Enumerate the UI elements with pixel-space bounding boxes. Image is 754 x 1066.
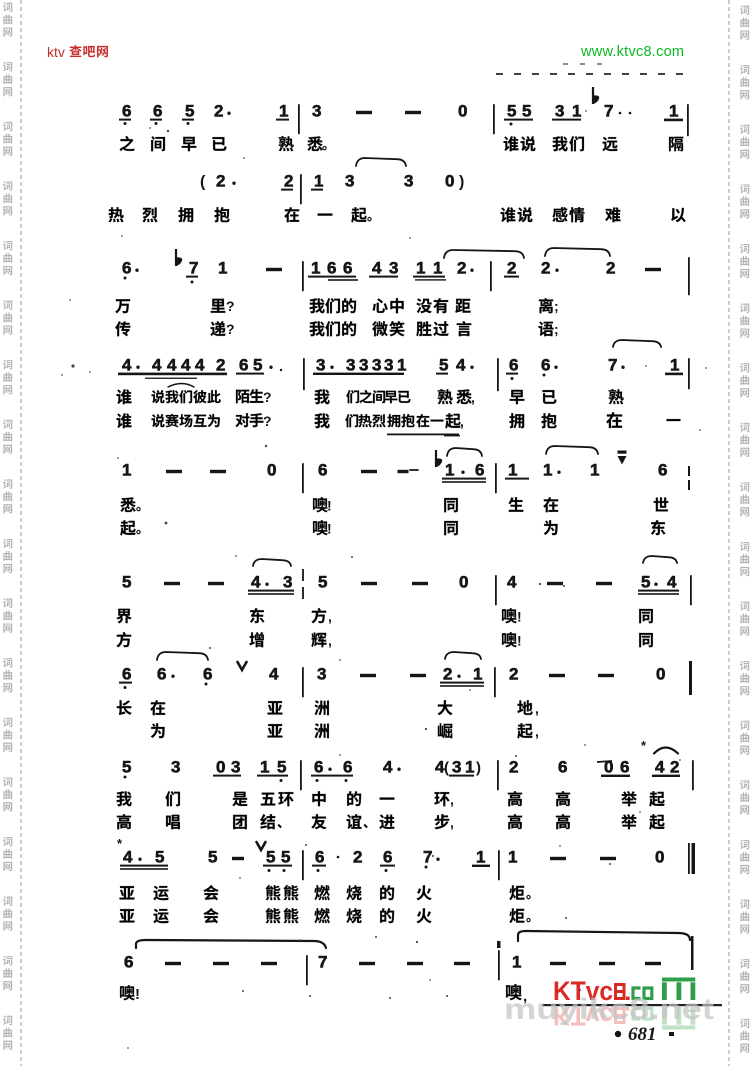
- svg-text:3: 3: [317, 664, 326, 683]
- svg-text:3: 3: [452, 757, 461, 776]
- svg-text:6: 6: [327, 258, 336, 277]
- svg-text:6: 6: [343, 757, 352, 776]
- svg-text:2: 2: [606, 258, 615, 277]
- svg-text:2: 2: [353, 847, 362, 866]
- svg-text:6: 6: [620, 757, 629, 776]
- svg-text:3: 3: [312, 101, 321, 120]
- svg-text:3: 3: [316, 355, 325, 374]
- svg-text:,: ,: [471, 390, 475, 406]
- svg-text:4: 4: [655, 757, 665, 776]
- svg-text:6: 6: [343, 258, 352, 277]
- svg-text:1: 1: [590, 460, 599, 479]
- svg-text:2: 2: [509, 757, 518, 776]
- svg-text:4: 4: [167, 355, 177, 374]
- svg-text:): ): [476, 759, 481, 776]
- svg-text:6: 6: [383, 847, 392, 866]
- svg-text:6: 6: [509, 355, 518, 374]
- svg-text:,: ,: [535, 701, 539, 717]
- svg-text:6: 6: [315, 847, 324, 866]
- svg-text:4: 4: [195, 355, 205, 374]
- svg-text:7: 7: [608, 355, 617, 374]
- svg-text:6: 6: [157, 664, 166, 683]
- svg-text:3: 3: [404, 171, 413, 190]
- svg-text:0: 0: [267, 460, 276, 479]
- svg-text:6: 6: [124, 952, 133, 971]
- svg-text:1: 1: [669, 101, 678, 120]
- svg-text:!: !: [135, 986, 140, 1003]
- svg-text:4: 4: [667, 572, 677, 591]
- svg-text:1: 1: [473, 664, 482, 683]
- svg-text:4: 4: [123, 847, 133, 866]
- svg-text:4: 4: [269, 664, 279, 683]
- svg-text:!: !: [327, 521, 332, 537]
- svg-text:1: 1: [218, 258, 227, 277]
- svg-text:;: ;: [554, 298, 559, 314]
- svg-text:4: 4: [372, 258, 382, 277]
- svg-text:6: 6: [122, 258, 131, 277]
- svg-text:681: 681: [628, 1024, 657, 1045]
- svg-text:1: 1: [314, 171, 323, 190]
- svg-text:6: 6: [658, 460, 667, 479]
- svg-text:2: 2: [457, 258, 466, 277]
- svg-text:0: 0: [216, 757, 225, 776]
- svg-text:6: 6: [122, 664, 131, 683]
- svg-text:3: 3: [555, 101, 564, 120]
- svg-text:3: 3: [346, 355, 355, 374]
- svg-text:1: 1: [260, 757, 269, 776]
- svg-text:*: *: [641, 738, 647, 753]
- svg-text:muyikc8.net: muyikc8.net: [504, 993, 714, 1026]
- svg-text:7: 7: [604, 101, 613, 120]
- svg-text:ktv: ktv: [47, 44, 65, 60]
- svg-text:5: 5: [208, 847, 217, 866]
- svg-text:2: 2: [284, 171, 293, 190]
- svg-text:5: 5: [522, 101, 531, 120]
- svg-text:7: 7: [318, 952, 327, 971]
- svg-text:1: 1: [476, 847, 485, 866]
- svg-text:6: 6: [239, 355, 248, 374]
- svg-text:?: ?: [263, 389, 272, 405]
- svg-text:1: 1: [670, 355, 679, 374]
- svg-text:3: 3: [384, 355, 393, 374]
- svg-text:4: 4: [456, 355, 466, 374]
- svg-text:,: ,: [450, 792, 454, 808]
- svg-text:(: (: [444, 759, 449, 776]
- svg-text:5: 5: [277, 757, 286, 776]
- svg-text:5: 5: [155, 847, 164, 866]
- svg-text:5: 5: [281, 847, 290, 866]
- svg-text:2: 2: [670, 757, 679, 776]
- svg-text:3: 3: [389, 258, 398, 277]
- svg-text:0: 0: [655, 847, 664, 866]
- svg-text:!: !: [327, 498, 332, 514]
- svg-text:!: !: [517, 633, 522, 649]
- svg-text:?: ?: [263, 413, 272, 429]
- svg-text:4: 4: [383, 757, 393, 776]
- svg-text:0: 0: [458, 101, 467, 120]
- svg-text:,: ,: [328, 609, 332, 625]
- svg-text:5: 5: [439, 355, 448, 374]
- svg-text:www.ktvc8.com: www.ktvc8.com: [580, 44, 684, 60]
- svg-text:3: 3: [171, 757, 180, 776]
- svg-text:5: 5: [122, 757, 131, 776]
- svg-text:3: 3: [372, 355, 381, 374]
- svg-text:,: ,: [450, 815, 454, 831]
- svg-text:6: 6: [475, 460, 484, 479]
- svg-text:1: 1: [512, 952, 521, 971]
- svg-text:5: 5: [185, 101, 194, 120]
- svg-text:4: 4: [181, 355, 191, 374]
- svg-text:2: 2: [509, 664, 518, 683]
- svg-text:5: 5: [253, 355, 262, 374]
- svg-text:0: 0: [656, 664, 665, 683]
- svg-text:4: 4: [251, 572, 261, 591]
- svg-text:6: 6: [318, 460, 327, 479]
- svg-text:;: ;: [554, 321, 559, 337]
- svg-text:?: ?: [226, 321, 235, 337]
- svg-text:2: 2: [443, 664, 452, 683]
- svg-text:5: 5: [122, 572, 131, 591]
- svg-text:6: 6: [314, 757, 323, 776]
- svg-text:1: 1: [122, 460, 131, 479]
- svg-text:6: 6: [153, 101, 162, 120]
- svg-text:5: 5: [318, 572, 327, 591]
- svg-text:2: 2: [214, 101, 223, 120]
- svg-text:3: 3: [359, 355, 368, 374]
- svg-text:7: 7: [189, 258, 198, 277]
- svg-text:2: 2: [507, 258, 516, 277]
- svg-text:2: 2: [216, 171, 225, 190]
- svg-text:7: 7: [423, 847, 432, 866]
- svg-text:0: 0: [459, 572, 468, 591]
- svg-text:2: 2: [541, 258, 550, 277]
- svg-text:1: 1: [279, 101, 288, 120]
- svg-text:1: 1: [508, 460, 517, 479]
- svg-text:2: 2: [216, 355, 225, 374]
- svg-text:1: 1: [465, 757, 474, 776]
- svg-text:5: 5: [266, 847, 275, 866]
- svg-text:1: 1: [508, 847, 517, 866]
- svg-text:!: !: [517, 609, 522, 625]
- svg-text:1: 1: [572, 101, 581, 120]
- svg-text:4: 4: [122, 355, 132, 374]
- svg-text:(: (: [200, 173, 206, 190]
- svg-text:?: ?: [226, 298, 235, 314]
- svg-text:,: ,: [535, 724, 539, 740]
- svg-text:4: 4: [152, 355, 162, 374]
- svg-text:6: 6: [541, 355, 550, 374]
- svg-text:6: 6: [558, 757, 567, 776]
- svg-text:,: ,: [460, 414, 464, 430]
- svg-text:1: 1: [416, 258, 425, 277]
- svg-text:1: 1: [397, 355, 406, 374]
- svg-text:6: 6: [203, 664, 212, 683]
- svg-text:3: 3: [345, 171, 354, 190]
- svg-text:1: 1: [543, 460, 552, 479]
- svg-text:5: 5: [507, 101, 516, 120]
- svg-text:1: 1: [311, 258, 320, 277]
- svg-text:0: 0: [604, 757, 613, 776]
- svg-text:0: 0: [445, 171, 454, 190]
- svg-text:3: 3: [283, 572, 292, 591]
- svg-text:1: 1: [445, 460, 454, 479]
- svg-text:4: 4: [507, 572, 517, 591]
- svg-text:3: 3: [231, 757, 240, 776]
- svg-text:5: 5: [641, 572, 650, 591]
- svg-text:1: 1: [433, 258, 442, 277]
- svg-text:): ): [459, 173, 464, 190]
- svg-text:6: 6: [122, 101, 131, 120]
- svg-text:,: ,: [328, 633, 332, 649]
